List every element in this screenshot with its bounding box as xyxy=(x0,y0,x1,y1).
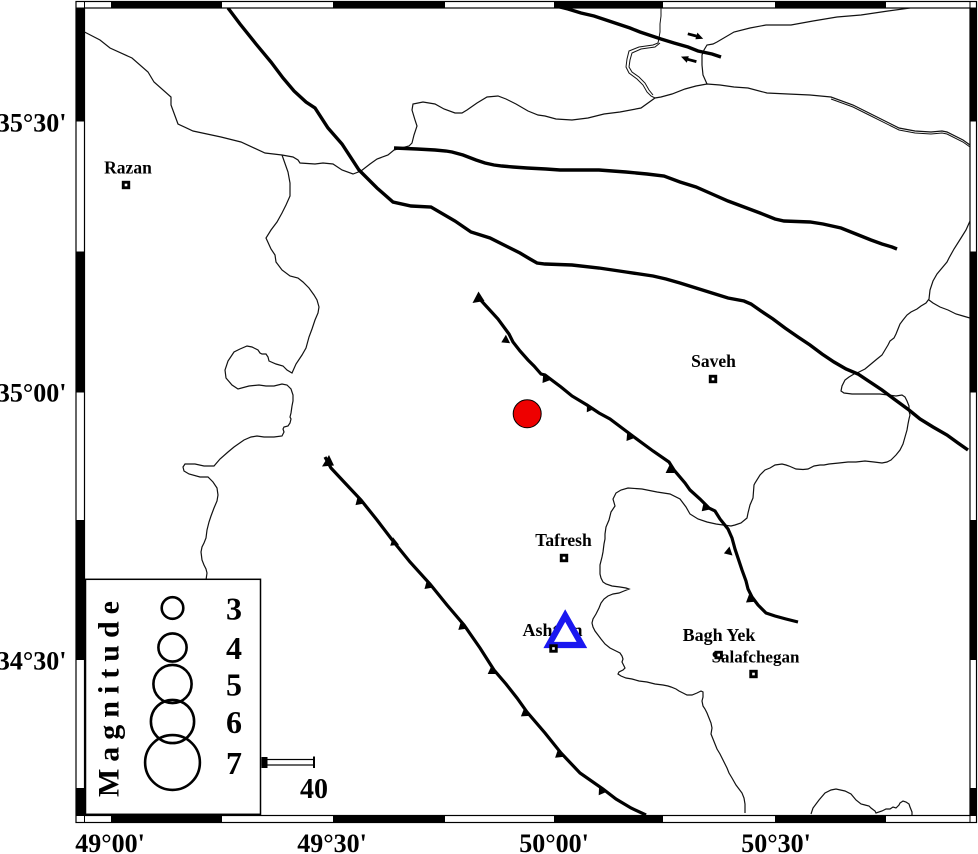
svg-text:50°00': 50°00' xyxy=(519,829,589,854)
svg-text:3: 3 xyxy=(226,591,242,627)
svg-text:7: 7 xyxy=(226,745,242,781)
svg-text:6: 6 xyxy=(226,704,242,740)
svg-text:35°00': 35°00' xyxy=(0,379,67,408)
svg-text:50°30': 50°30' xyxy=(741,829,811,854)
svg-text:49°30': 49°30' xyxy=(297,829,367,854)
svg-text:Razan: Razan xyxy=(104,158,152,178)
svg-text:Saveh: Saveh xyxy=(691,351,736,371)
svg-text:34°30': 34°30' xyxy=(0,647,67,676)
svg-text:Bagh Yek: Bagh Yek xyxy=(683,625,756,645)
svg-text:49°00': 49°00' xyxy=(75,829,145,854)
svg-text:5: 5 xyxy=(226,667,242,703)
svg-text:4: 4 xyxy=(226,630,242,666)
svg-text:Tafresh: Tafresh xyxy=(535,530,592,550)
svg-text:35°30': 35°30' xyxy=(0,109,67,138)
svg-text:40: 40 xyxy=(300,774,328,805)
svg-text:Magnitude: Magnitude xyxy=(93,594,126,797)
svg-text:Salafchegan: Salafchegan xyxy=(712,648,800,667)
